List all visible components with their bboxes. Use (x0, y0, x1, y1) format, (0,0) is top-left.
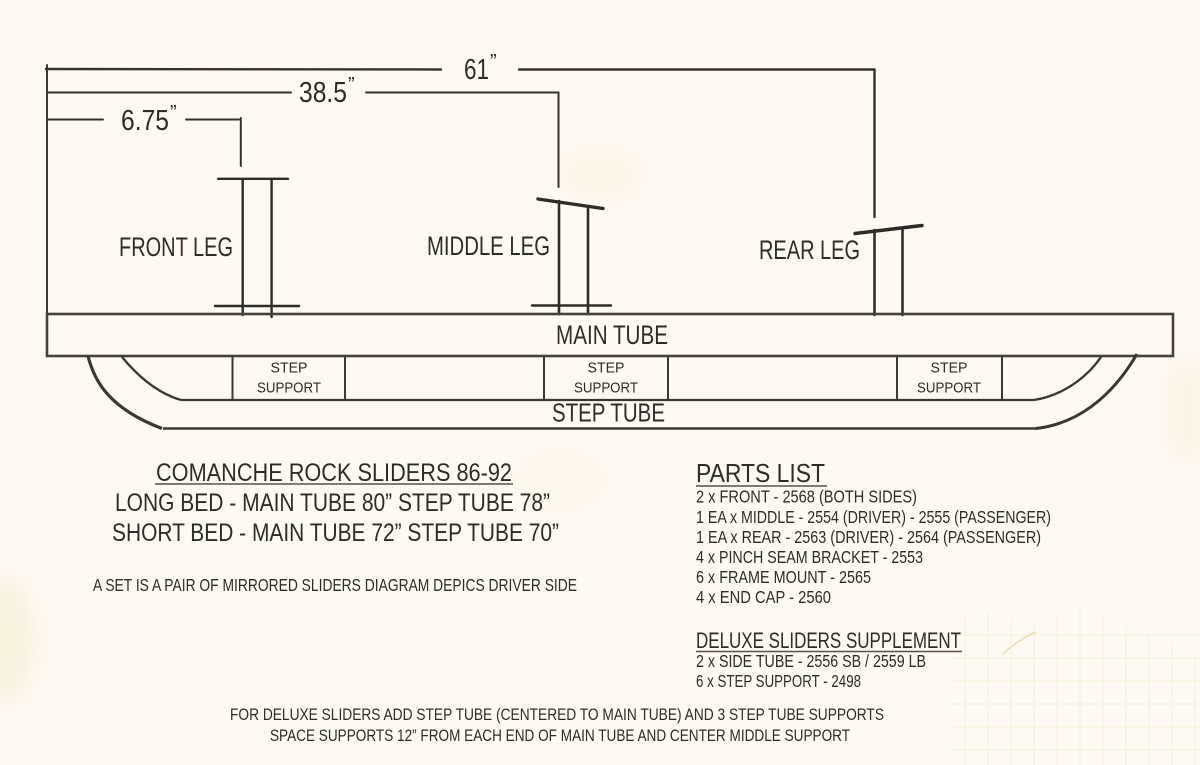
svg-text:COMANCHE ROCK SLIDERS 86-92: COMANCHE ROCK SLIDERS 86-92 (156, 459, 512, 487)
svg-text:MAIN TUBE: MAIN TUBE (556, 320, 668, 350)
svg-text:MIDDLE LEG: MIDDLE LEG (427, 231, 550, 261)
svg-text:”: ” (348, 74, 355, 96)
svg-text:SHORT BED - MAIN TUBE 72” STEP: SHORT BED - MAIN TUBE 72” STEP TUBE 70” (112, 519, 559, 547)
svg-text:1 EA x REAR - 2563 (DRIVER) -: 1 EA x REAR - 2563 (DRIVER) - 2564 (PASS… (696, 527, 1041, 547)
svg-text:38.5: 38.5 (299, 77, 347, 109)
svg-text:REAR LEG: REAR LEG (759, 235, 860, 265)
svg-text:DELUXE SLIDERS SUPPLEMENT: DELUXE SLIDERS SUPPLEMENT (696, 628, 961, 653)
svg-text:STEP: STEP (588, 361, 625, 377)
svg-text:STEP: STEP (271, 361, 308, 377)
svg-text:4 x PINCH SEAM BRACKET - 2553: 4 x PINCH SEAM BRACKET - 2553 (696, 547, 923, 567)
svg-text:A SET IS A PAIR OF MIRRORED SL: A SET IS A PAIR OF MIRRORED SLIDERS DIAG… (93, 575, 577, 595)
svg-text:61: 61 (464, 54, 489, 86)
svg-text:SUPPORT: SUPPORT (257, 381, 321, 397)
svg-text:1 EA x MIDDLE - 2554 (DRIVER): 1 EA x MIDDLE - 2554 (DRIVER) - 2555 (PA… (696, 507, 1051, 527)
svg-text:SUPPORT: SUPPORT (574, 381, 638, 397)
svg-text:4 x END CAP - 2560: 4 x END CAP - 2560 (696, 587, 831, 607)
svg-text:SPACE SUPPORTS 12” FROM EACH E: SPACE SUPPORTS 12” FROM EACH END OF MAIN… (270, 726, 850, 745)
svg-text:SUPPORT: SUPPORT (917, 381, 981, 397)
svg-text:FOR DELUXE SLIDERS ADD STEP TU: FOR DELUXE SLIDERS ADD STEP TUBE (CENTER… (230, 705, 884, 724)
svg-text:6.75: 6.75 (121, 105, 169, 137)
svg-text:2 x SIDE TUBE - 2556 SB / 2559: 2 x SIDE TUBE - 2556 SB / 2559 LB (696, 651, 926, 671)
svg-text:PARTS LIST: PARTS LIST (696, 458, 825, 488)
svg-text:”: ” (490, 51, 497, 73)
svg-text:6 x FRAME MOUNT - 2565: 6 x FRAME MOUNT - 2565 (696, 567, 871, 587)
svg-text:STEP: STEP (931, 361, 968, 377)
svg-text:2 x FRONT - 2568 (BOTH SIDES): 2 x FRONT - 2568 (BOTH SIDES) (696, 487, 917, 507)
svg-text:STEP TUBE: STEP TUBE (552, 398, 665, 428)
svg-text:”: ” (170, 102, 177, 124)
svg-text:LONG BED - MAIN TUBE 80” STEP: LONG BED - MAIN TUBE 80” STEP TUBE 78” (115, 489, 550, 517)
svg-text:FRONT LEG: FRONT LEG (119, 232, 233, 262)
svg-text:6 x STEP SUPPORT - 2498: 6 x STEP SUPPORT - 2498 (696, 671, 861, 691)
